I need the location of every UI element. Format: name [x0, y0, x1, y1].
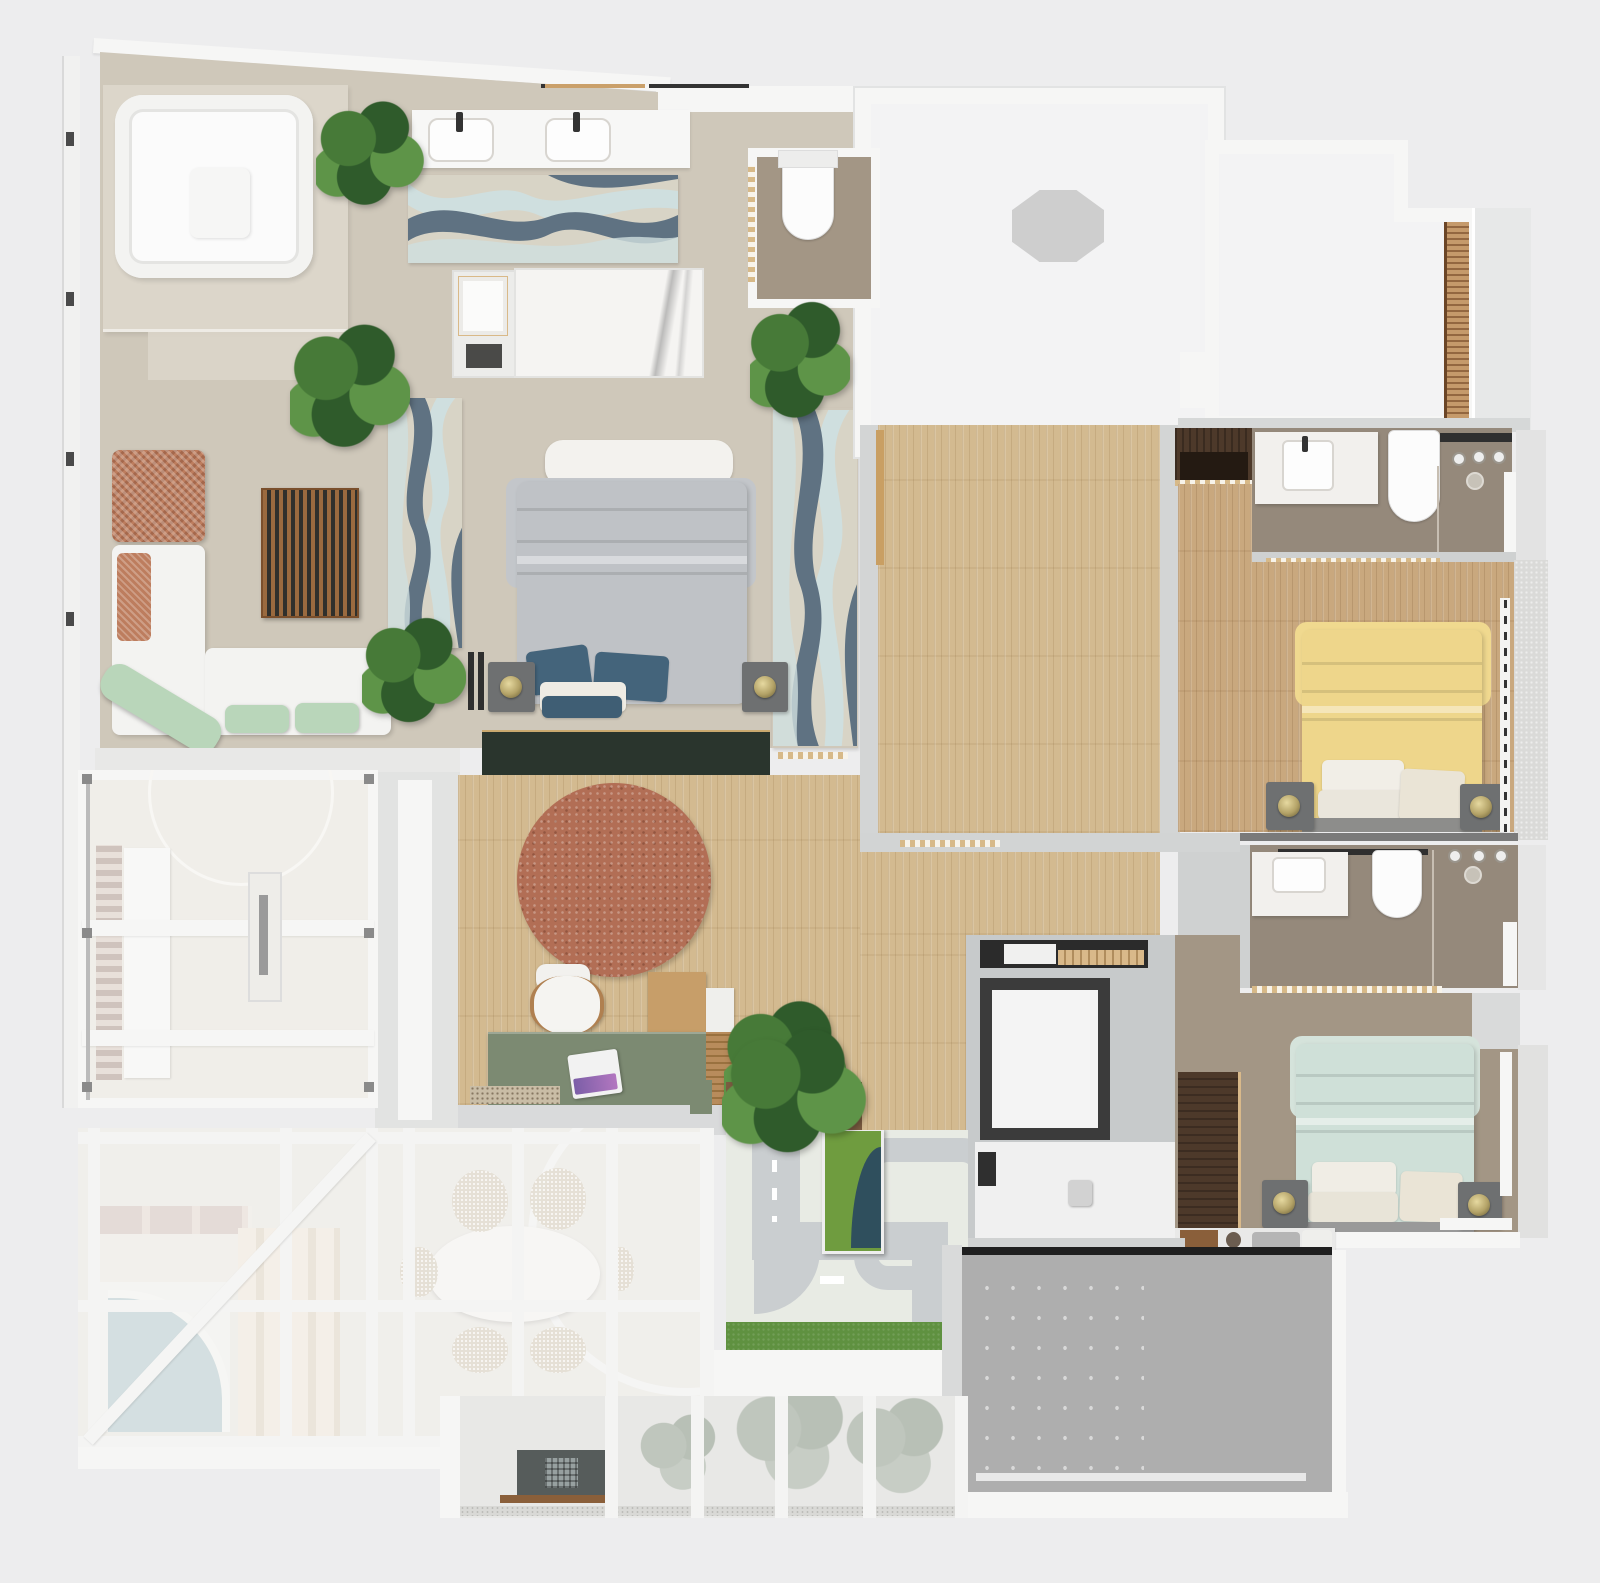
bed-mint-pillow-2 — [1308, 1192, 1398, 1222]
core-closet-shelf — [1058, 950, 1144, 965]
terrace-speckles — [974, 1273, 1144, 1473]
bath2-divider — [1432, 850, 1434, 986]
bath2-basin — [1272, 857, 1326, 893]
wardrobe-2 — [1178, 1072, 1241, 1232]
frame-node-2 — [364, 774, 374, 784]
lower-patio — [460, 1396, 968, 1518]
shower-bench-seat — [458, 276, 508, 336]
bedroom1-balcony — [1514, 560, 1548, 840]
lamp-y-left — [1278, 795, 1300, 817]
mid-door-threshold — [900, 840, 1000, 847]
bed-yellow-base — [1302, 818, 1482, 832]
wall-roomc-right — [1160, 425, 1180, 835]
glazing-mullion-ticks — [66, 56, 74, 772]
round-terracotta-rug — [517, 783, 711, 977]
bath2-mixer-2 — [1472, 849, 1486, 863]
terrace-bottom-band — [948, 1492, 1348, 1518]
faucet-left — [456, 112, 463, 132]
frame-node-1 — [82, 774, 92, 784]
patio-mullion-3 — [775, 1396, 788, 1518]
bath2-toilet — [1372, 850, 1422, 918]
empty-wood-room — [878, 425, 1160, 833]
balcony-wood-slats — [1444, 222, 1469, 428]
ghost-tree-2 — [832, 1396, 958, 1500]
bedroom2-top-right-wall — [1472, 993, 1520, 1049]
lamp-m-left — [1273, 1192, 1295, 1214]
bed-mint-pillow-3 — [1399, 1171, 1463, 1223]
tree-courtyard — [722, 1030, 868, 1156]
powder-threshold — [748, 166, 755, 282]
shower-mat — [466, 344, 502, 368]
frame-node-3 — [82, 928, 92, 938]
bath2-mixer-3 — [1494, 849, 1508, 863]
terrace-top-edge — [962, 1247, 1332, 1255]
suite-bottom-band — [95, 748, 460, 772]
elevator-call-pad — [1068, 1180, 1092, 1206]
patio-gravel-sill — [460, 1506, 968, 1516]
lamp-master-right — [754, 676, 776, 698]
elevator-cab — [992, 990, 1098, 1128]
office-door-mat — [470, 1086, 560, 1104]
bed-yellow-pillow-3 — [1399, 768, 1466, 823]
skylight-octagon — [1012, 190, 1104, 262]
patio-mullion-4 — [863, 1396, 876, 1518]
mullion-h1 — [78, 1132, 714, 1144]
tree-jacuzzi — [316, 100, 424, 210]
frame-node-5 — [82, 1082, 92, 1092]
bath1-mixer-2 — [1472, 450, 1486, 464]
office-wood-desk — [648, 972, 706, 1034]
skylight-room-a — [855, 88, 1224, 457]
bath1-faucet — [1302, 436, 1308, 452]
marble-shower-slab — [514, 268, 704, 378]
patio-left-wall — [440, 1396, 462, 1518]
bed-yellow-pillow-1 — [1322, 760, 1404, 794]
lawn-strip — [726, 1322, 968, 1352]
tree-suite-bottom — [362, 616, 466, 728]
frame-rail — [86, 778, 90, 1100]
bedroom2-balcony-door-h — [1440, 1218, 1512, 1230]
bath1-mixer-1 — [1452, 452, 1466, 466]
roof-beam-2 — [82, 1030, 374, 1046]
mullion-v3 — [366, 1128, 378, 1450]
shelf-vase — [1226, 1232, 1241, 1248]
bath1-divider — [1437, 466, 1439, 558]
radiator-bars — [468, 652, 474, 710]
corridor-floor-south — [860, 935, 966, 1132]
sage-sliver — [690, 1080, 712, 1114]
terrace-bottom-sill — [976, 1473, 1306, 1481]
roof-beam-1 — [82, 920, 374, 936]
floor-plan-render — [0, 0, 1600, 1583]
patio-wood-bench — [500, 1495, 612, 1503]
frame-node-6 — [364, 1082, 374, 1092]
double-door-threshold — [545, 84, 645, 88]
right-edge-slab-top — [1472, 208, 1531, 430]
bath2-mixer-1 — [1448, 849, 1462, 863]
planter-pond — [851, 1147, 881, 1248]
bath1-basin — [1282, 440, 1334, 491]
wardrobe-1-opening — [1180, 452, 1248, 482]
mint-cushion-1 — [225, 705, 289, 733]
wavy-rug-horizontal — [408, 175, 678, 263]
corridor-floor — [860, 852, 1160, 935]
bath2-balcony — [1518, 845, 1546, 990]
mint-cushion-2 — [295, 703, 359, 733]
mullion-h2 — [78, 1300, 714, 1312]
lobby-niche — [978, 1152, 996, 1186]
bed-yellow-pillow-2 — [1318, 790, 1406, 820]
office-left-wall-band — [398, 780, 432, 1120]
lamp-y-right — [1470, 796, 1492, 818]
bath2-drain — [1464, 866, 1482, 884]
patio-mullion-2 — [691, 1396, 704, 1518]
bath1-drain — [1466, 472, 1484, 490]
roomc-threshold-bar — [876, 430, 884, 565]
courtyard — [726, 1130, 968, 1352]
terrace-right-pillar — [1332, 1250, 1346, 1500]
bath1-mixer-3 — [1492, 450, 1506, 464]
tree-suite-mid — [290, 322, 410, 454]
rust-cushion — [117, 553, 151, 641]
bath2-threshold — [1252, 986, 1442, 993]
mullion-v1 — [88, 1128, 100, 1450]
mullion-v2 — [280, 1128, 292, 1450]
patio-crate — [545, 1458, 578, 1488]
bedroom1-curtain-wave — [1504, 598, 1507, 832]
lamp-master-left — [500, 676, 522, 698]
rust-ottoman — [112, 450, 205, 542]
core-closet-panel — [1004, 944, 1056, 964]
hall-threshold — [778, 752, 848, 759]
frame-node-4 — [364, 928, 374, 938]
bath1-toilet — [1388, 430, 1440, 522]
jacuzzi-center-seat — [190, 168, 250, 238]
bath2-glass-door — [1503, 922, 1517, 986]
bath1-balcony — [1516, 430, 1546, 560]
lamp-m-right — [1468, 1194, 1490, 1216]
bath1-towel-bar — [1440, 433, 1512, 442]
patio-mullion-1 — [605, 1396, 618, 1518]
ghost-tree-3 — [630, 1412, 726, 1496]
patio-mullion-5 — [955, 1396, 968, 1518]
roof-terrace — [962, 1255, 1332, 1492]
glass-room-upper — [78, 770, 378, 1108]
skylight-room-b-floor — [1219, 154, 1458, 416]
slab-below-bedroom1 — [1178, 852, 1240, 935]
bedroom2-balcony-strip — [1518, 1045, 1548, 1238]
tree-below-powder — [750, 298, 850, 426]
mullion-v4 — [403, 1128, 415, 1450]
skylight-slot — [259, 895, 268, 975]
slatted-wood-bench — [261, 488, 359, 618]
faucet-right — [573, 112, 580, 132]
bedroom2-balcony-door-v — [1500, 1052, 1512, 1196]
bath2-top-band — [1240, 833, 1518, 841]
powder-cistern — [778, 150, 838, 168]
bed-mint-pillow-1 — [1312, 1162, 1396, 1196]
green-wardrobe — [482, 730, 770, 776]
desk-chair-seat — [530, 976, 604, 1034]
pillow-blue-small — [542, 696, 622, 718]
